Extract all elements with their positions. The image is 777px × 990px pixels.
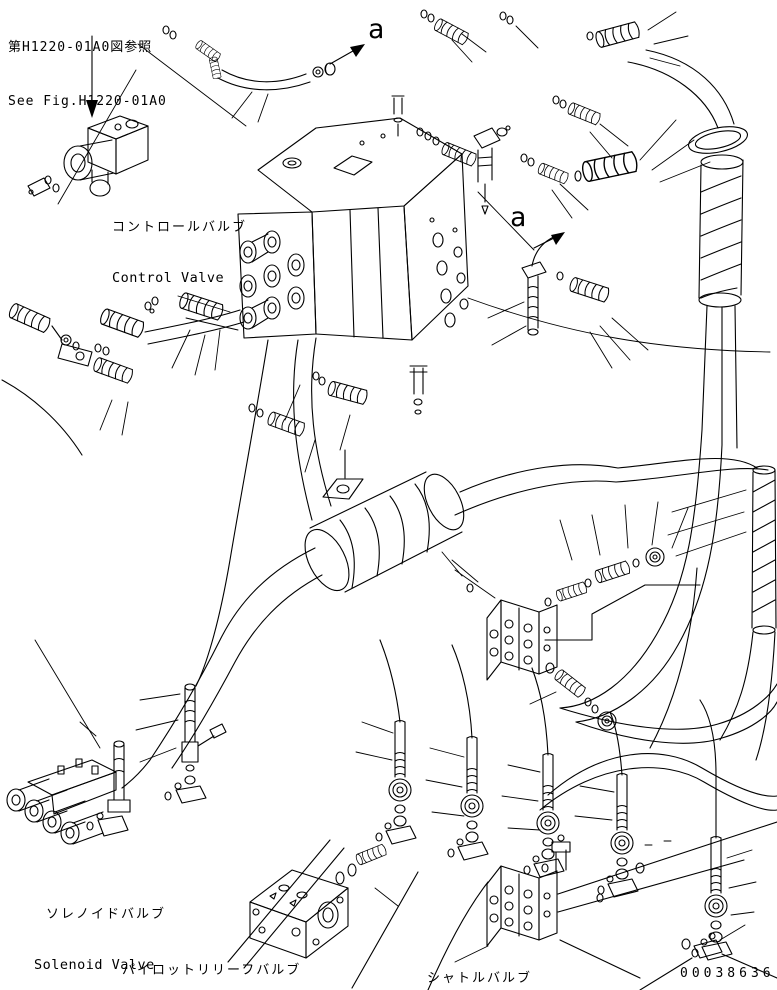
shuttle-valve-1-drawing — [442, 502, 700, 730]
diagram-page: 第H1220-01A0図参照 See Fig.H1220-01A0 a a コン… — [0, 0, 777, 990]
banjo-bolts — [356, 640, 756, 960]
shuttle-valve-label-jp: シャトルバルブ — [417, 970, 532, 987]
section-arrow-a1 — [330, 44, 365, 64]
top-fittings — [421, 10, 688, 218]
mid-right-fittings — [468, 235, 770, 368]
long-hoses — [196, 338, 777, 845]
control-valve-label-jp: コントロールバルブ — [112, 219, 247, 236]
drawing-number: 00038636 — [680, 966, 775, 981]
piping-diagram-art — [0, 0, 777, 990]
left-fitting-chain — [2, 292, 427, 472]
reference-note-jp: 第H1220-01A0図参照 — [8, 40, 167, 56]
center-hose-coil — [122, 450, 768, 788]
section-marker-a2: a — [510, 202, 526, 233]
pilot-relief-valve-label-jp: パイロットリリーフバルブ — [122, 962, 301, 979]
control-valve-label-en: Control Valve — [112, 270, 247, 287]
section-marker-a1: a — [368, 14, 384, 45]
reference-note: 第H1220-01A0図参照 See Fig.H1220-01A0 — [8, 2, 167, 129]
spiral-wrap-upper — [628, 50, 750, 448]
solenoid-valve-label-jp: ソレノイドバルブ — [34, 906, 166, 923]
control-valve-drawing — [178, 96, 710, 340]
shuttle-valve-label: シャトルバルブ Shuttle Valve — [417, 936, 532, 990]
control-valve-label: コントロールバルブ Control Valve — [112, 185, 247, 304]
pilot-relief-valve-label: パイロットリリーフバルブ Pilot Relief Valve — [122, 928, 301, 990]
solenoid-valve-drawing — [7, 640, 130, 844]
reference-note-en: See Fig.H1220-01A0 — [8, 94, 167, 110]
spiral-wrap-lower — [668, 466, 776, 760]
